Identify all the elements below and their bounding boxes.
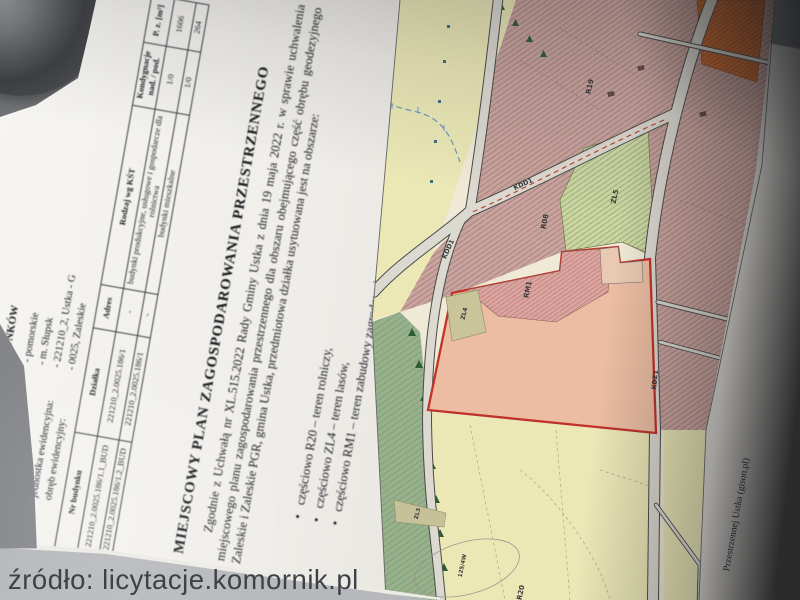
source-watermark: źródło: licytacje.komornik.pl bbox=[8, 564, 359, 596]
map-source-caption: Przestrzennej Ustka (gison.pl) bbox=[721, 457, 752, 572]
zoning-map: R19 R08 ZL5 RM1 ZL4 ZL3 R20 125/4W KDD1 … bbox=[355, 0, 800, 600]
photo-of-document: WYPIS Z KARTOTEKI BUDYNKÓW województwo: … bbox=[0, 0, 800, 600]
